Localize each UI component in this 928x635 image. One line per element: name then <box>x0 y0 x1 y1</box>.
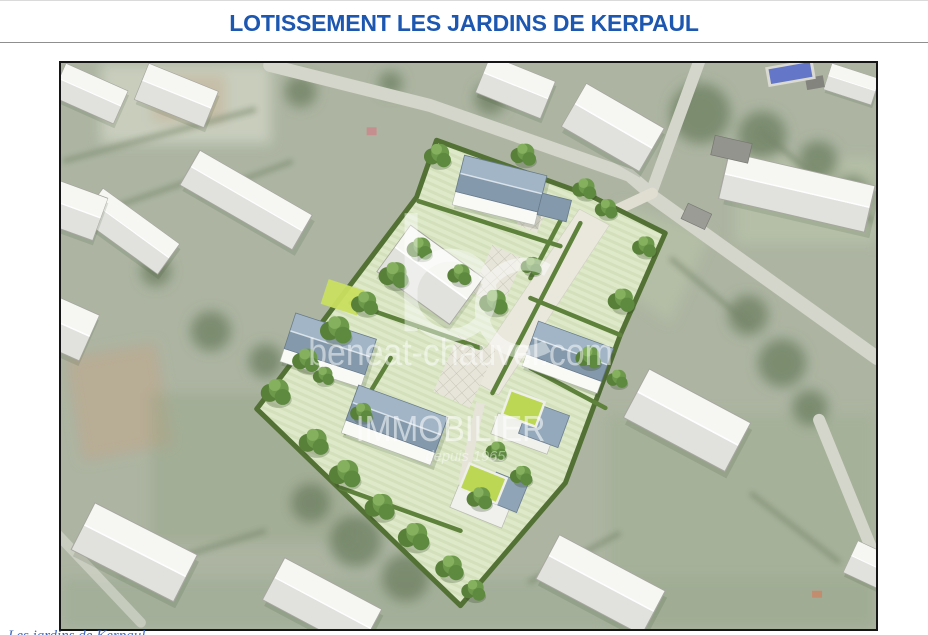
document-page: LOTISSEMENT LES JARDINS DE KERPAUL <box>0 0 928 635</box>
page-title: LOTISSEMENT LES JARDINS DE KERPAUL <box>0 10 928 37</box>
top-rule <box>0 0 928 1</box>
title-divider-rule <box>0 42 928 43</box>
site-plan-svg: beneat-chauvel.com IMMOBILIER depuis 196… <box>61 63 876 629</box>
site-plan-figure: beneat-chauvel.com IMMOBILIER depuis 196… <box>59 61 878 631</box>
brand-watermark: IMMOBILIER <box>356 408 546 449</box>
bottom-caption-partial: Les jardins de Kerpaul <box>8 628 145 635</box>
tagline-watermark: depuis 1965 <box>426 448 507 465</box>
website-watermark: beneat-chauvel.com <box>308 332 613 374</box>
